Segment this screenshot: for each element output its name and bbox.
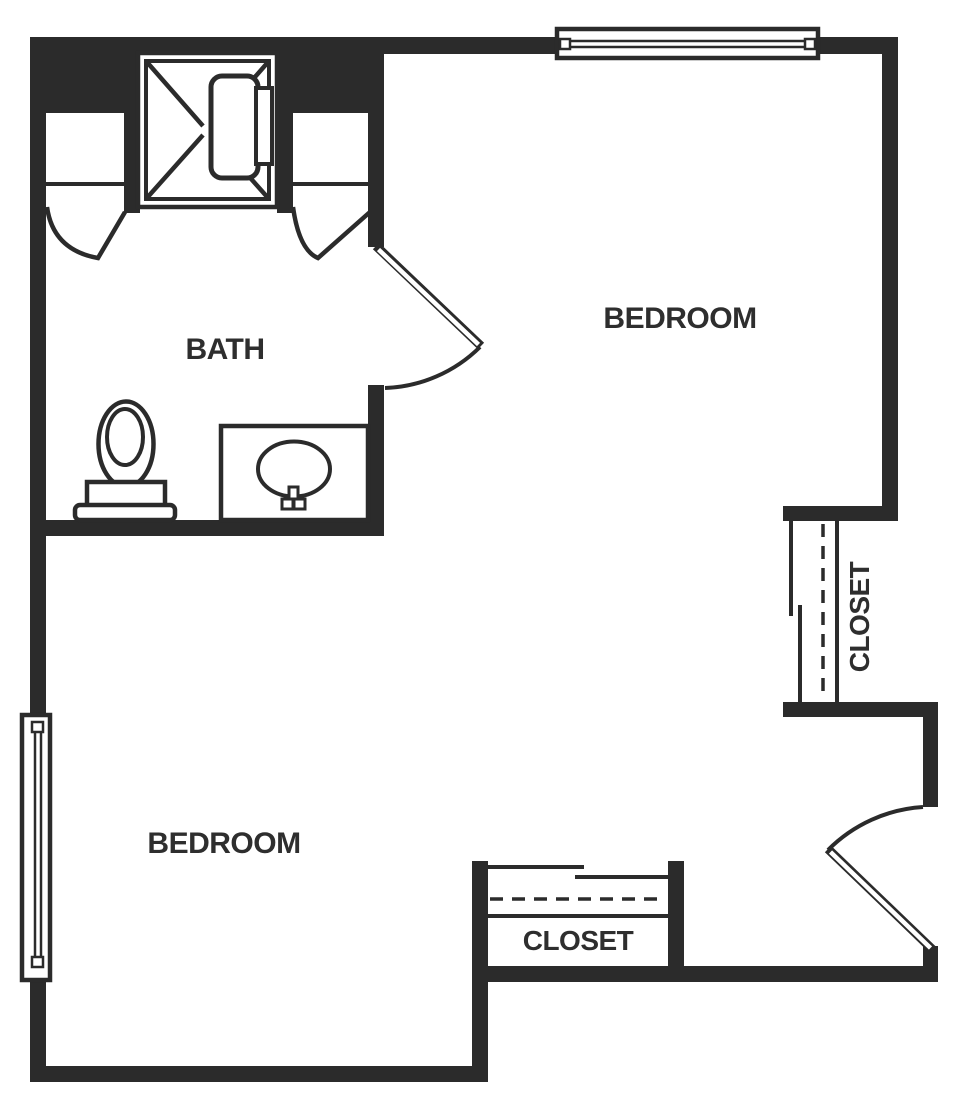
entry-swing-door xyxy=(828,807,933,950)
closet-right-label: CLOSET xyxy=(844,561,875,672)
alcove-door-right xyxy=(293,184,370,258)
bedroom-top-label: BEDROOM xyxy=(603,302,756,335)
room-labels: BATH BEDROOM BEDROOM CLOSET CLOSET xyxy=(147,302,875,956)
entry-door-leaf-inner xyxy=(831,852,931,948)
entry-door-swing-arc xyxy=(828,807,923,850)
wall-left-upper xyxy=(30,37,46,716)
vanity-counter xyxy=(221,426,368,520)
wall-pillar-right xyxy=(277,113,293,213)
bath-label: BATH xyxy=(185,333,264,366)
floor-plan-canvas: BATH BEDROOM BEDROOM CLOSET CLOSET xyxy=(0,0,962,1102)
window-top xyxy=(557,29,818,58)
toilet-base xyxy=(75,505,175,520)
closet-bottom-label: CLOSET xyxy=(523,925,634,956)
wall-shower-left-mass xyxy=(46,51,140,113)
floor-plan-drawing: BATH BEDROOM BEDROOM CLOSET CLOSET xyxy=(0,0,962,1102)
window-top-frame xyxy=(557,29,818,58)
faucet-base-right xyxy=(294,499,305,509)
wall-right-step xyxy=(923,702,938,807)
closet-right-interior xyxy=(791,521,837,702)
toilet-bowl-inner xyxy=(107,409,143,465)
wall-shower-right-mass xyxy=(277,51,384,113)
wall-closet-bottom-right-post xyxy=(668,861,684,971)
wall-bath-east-lower xyxy=(368,385,384,536)
alcove-left-door-swing xyxy=(47,207,125,258)
wall-bottom-right xyxy=(472,966,938,982)
window-top-block-left xyxy=(560,39,570,49)
closet-bottom-interior xyxy=(488,867,668,916)
window-top-block-right xyxy=(805,39,815,49)
wall-closet-right-bottom xyxy=(783,702,938,717)
toilet xyxy=(75,402,175,521)
bath-door-swing-arc xyxy=(385,347,480,388)
faucet-base-left xyxy=(282,499,293,509)
alcove-right-door-swing xyxy=(293,207,370,258)
window-left-block-top xyxy=(32,722,43,732)
wall-closet-right-top-stub xyxy=(783,506,898,521)
shower-stall xyxy=(138,53,277,207)
shower-door-handle xyxy=(256,88,272,164)
shower-door xyxy=(211,76,258,178)
bath-door-leaf-inner xyxy=(379,250,479,345)
bath-swing-door xyxy=(376,246,481,388)
wall-bottom-bedroom xyxy=(30,1066,488,1082)
bedroom-bottom-label: BEDROOM xyxy=(147,827,300,860)
window-left-block-bottom xyxy=(32,957,43,967)
wall-bath-bottom xyxy=(30,520,384,536)
wall-right-upper xyxy=(882,37,898,508)
alcove-door-left xyxy=(46,184,125,258)
window-left xyxy=(22,715,50,980)
